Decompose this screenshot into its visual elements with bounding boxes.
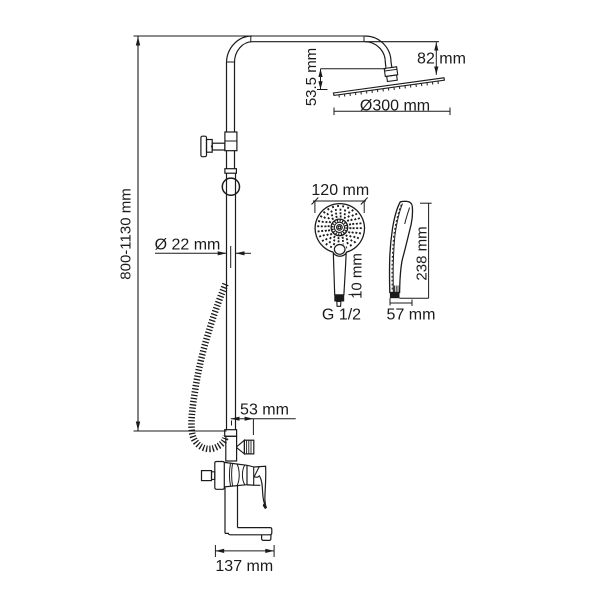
svg-text:137 mm: 137 mm bbox=[215, 558, 273, 575]
svg-text:57 mm: 57 mm bbox=[387, 306, 436, 323]
svg-text:Ø300 mm: Ø300 mm bbox=[360, 97, 430, 114]
svg-text:82 mm: 82 mm bbox=[417, 51, 466, 68]
svg-text:Ø 22 mm: Ø 22 mm bbox=[155, 237, 221, 254]
svg-text:G 1/2: G 1/2 bbox=[322, 306, 361, 323]
svg-text:238 mm: 238 mm bbox=[414, 226, 431, 280]
svg-text:53.5 mm: 53.5 mm bbox=[303, 48, 320, 106]
svg-text:120 mm: 120 mm bbox=[311, 182, 369, 199]
svg-text:800-1130 mm: 800-1130 mm bbox=[118, 188, 135, 279]
svg-text:53 mm: 53 mm bbox=[240, 402, 289, 419]
svg-text:10 mm: 10 mm bbox=[349, 253, 366, 299]
